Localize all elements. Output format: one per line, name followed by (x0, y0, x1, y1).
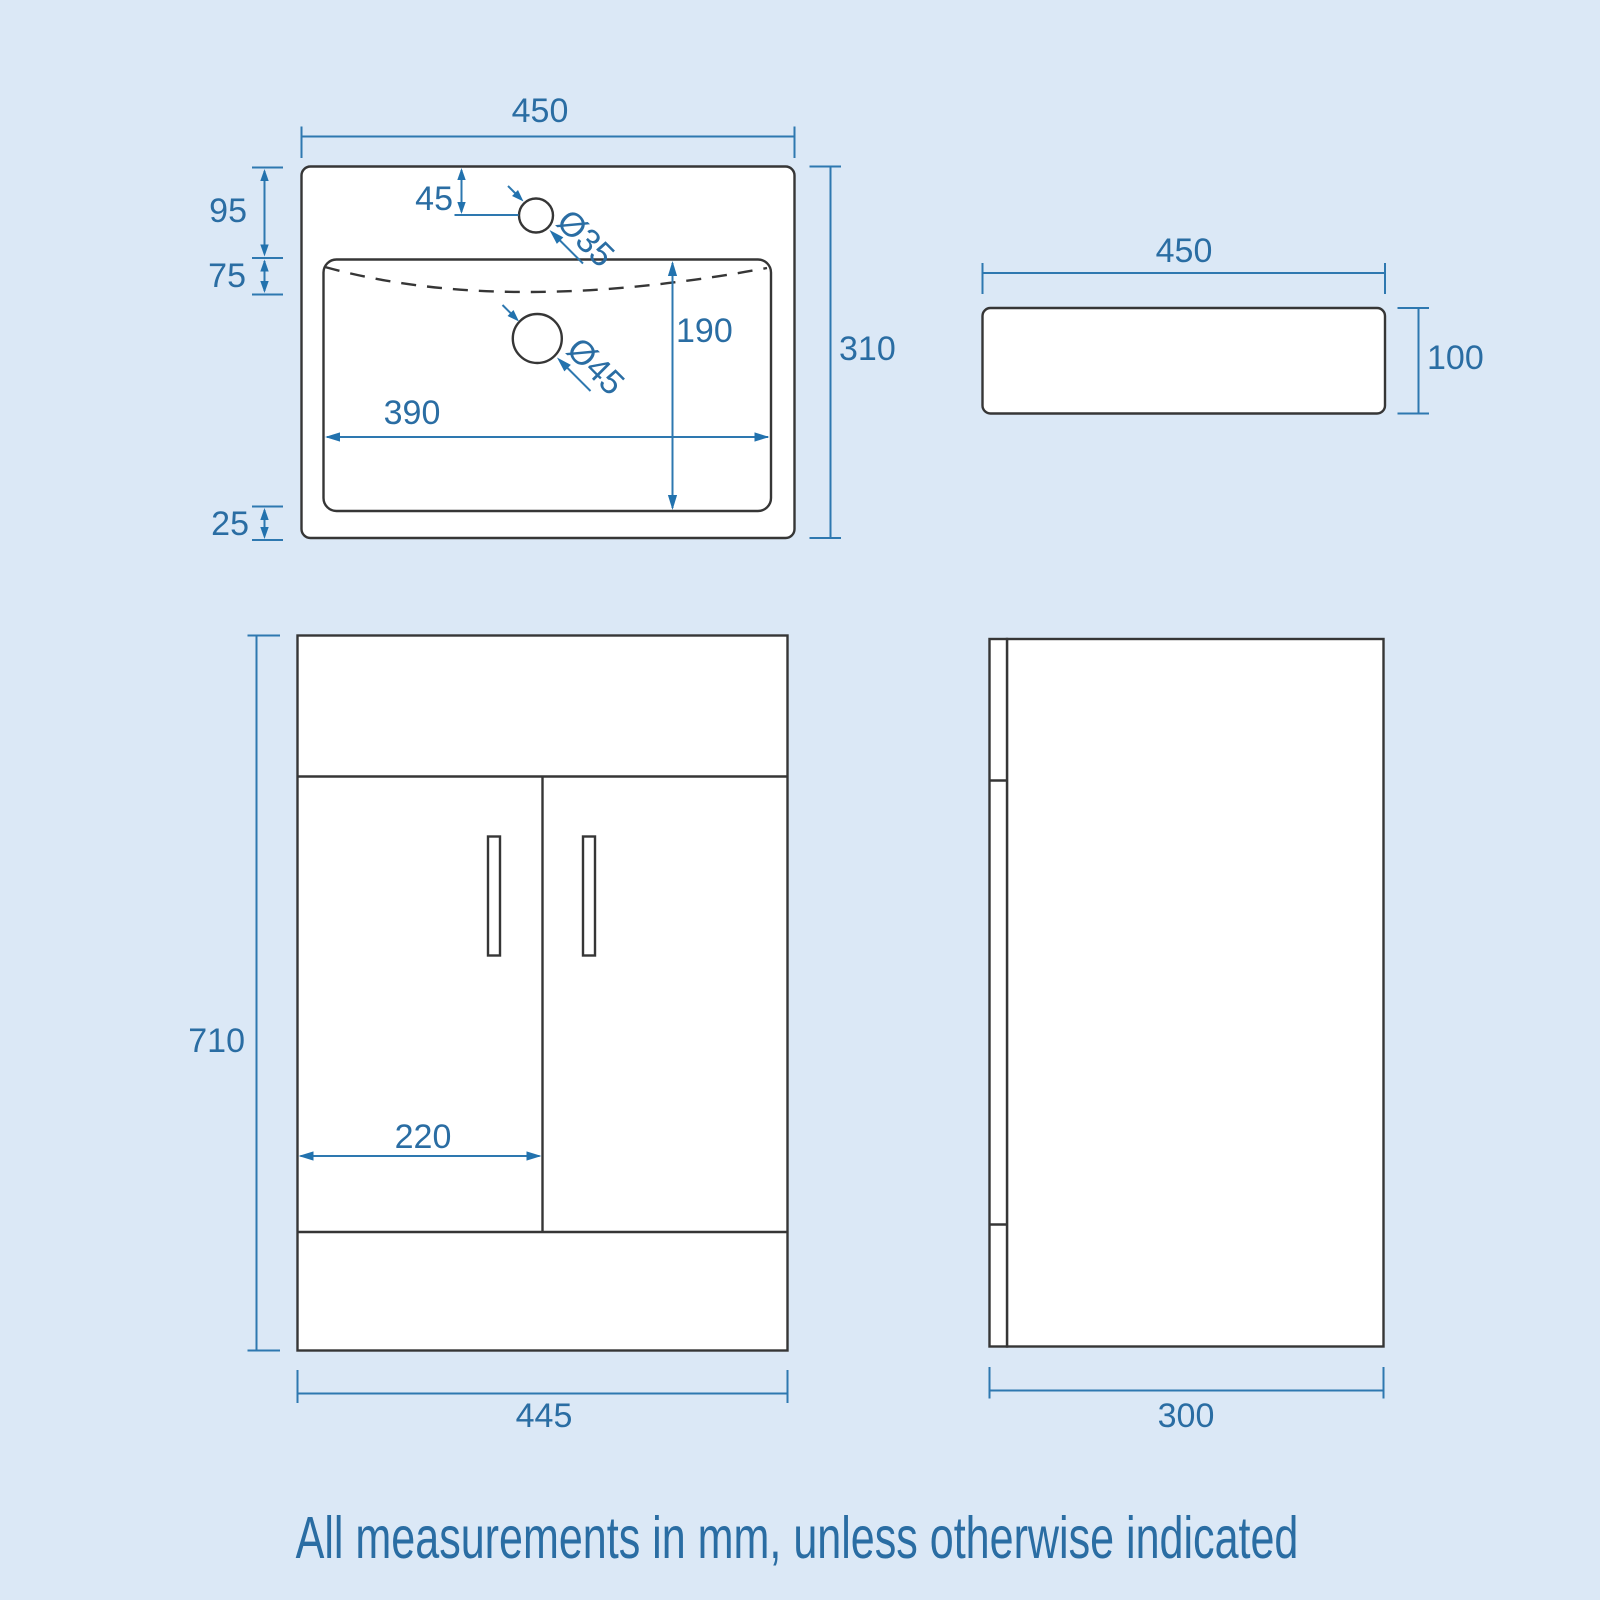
svg-text:300: 300 (1158, 1397, 1215, 1435)
svg-text:25: 25 (211, 505, 249, 543)
svg-text:390: 390 (384, 394, 441, 432)
svg-text:190: 190 (676, 312, 733, 350)
svg-text:45: 45 (415, 180, 453, 218)
svg-text:445: 445 (516, 1397, 573, 1435)
svg-text:450: 450 (512, 92, 569, 130)
svg-text:100: 100 (1427, 339, 1484, 377)
svg-text:95: 95 (209, 192, 247, 230)
svg-text:220: 220 (395, 1118, 452, 1156)
svg-text:310: 310 (839, 330, 896, 368)
svg-text:75: 75 (208, 257, 246, 295)
svg-text:450: 450 (1156, 232, 1213, 270)
svg-text:710: 710 (188, 1022, 245, 1060)
svg-text:All measurements in mm, unless: All measurements in mm, unless otherwise… (296, 1504, 1299, 1570)
